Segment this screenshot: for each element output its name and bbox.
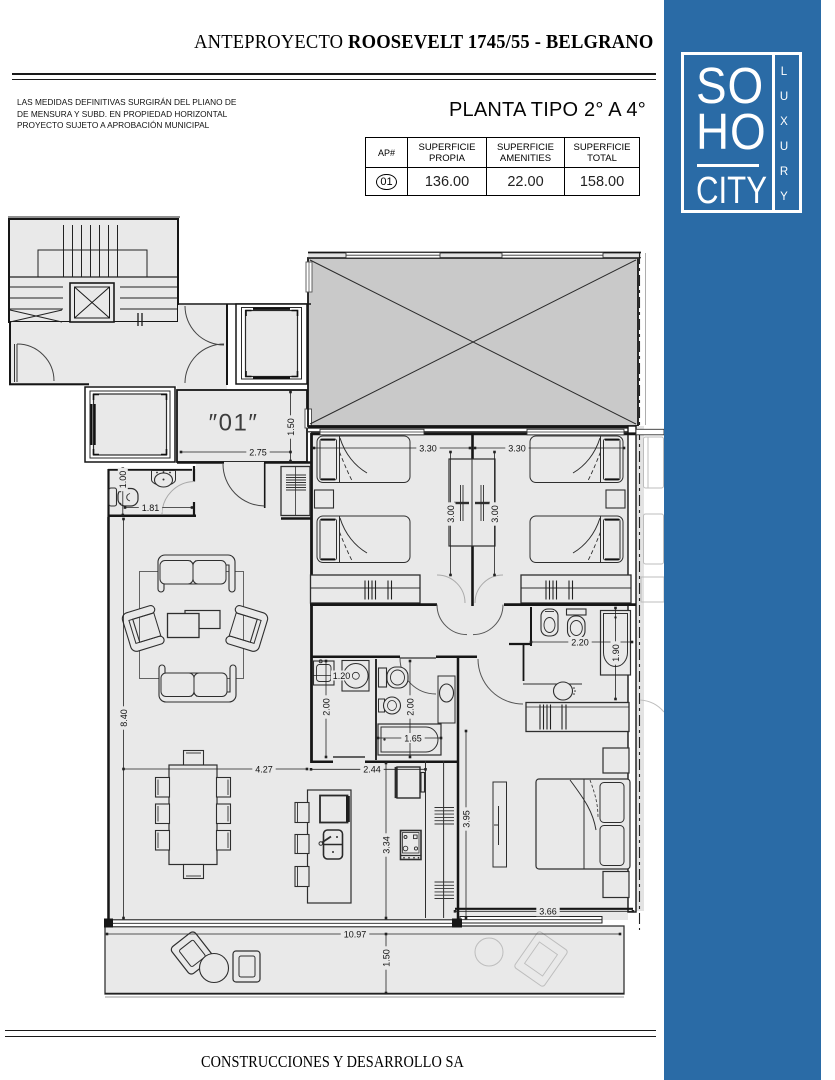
svg-text:2.75: 2.75 <box>249 447 267 457</box>
svg-text:3.66: 3.66 <box>539 907 557 917</box>
svg-text:1.65: 1.65 <box>404 733 422 743</box>
svg-text:1.90: 1.90 <box>611 644 621 662</box>
svg-text:10.97: 10.97 <box>344 929 367 939</box>
svg-text:3.00: 3.00 <box>490 505 500 523</box>
svg-text:1.00: 1.00 <box>118 471 128 489</box>
svg-text:1.20: 1.20 <box>333 671 351 681</box>
svg-text:3.30: 3.30 <box>419 443 437 453</box>
svg-text:3.30: 3.30 <box>508 443 526 453</box>
svg-text:1.50: 1.50 <box>381 949 391 967</box>
svg-text:2.00: 2.00 <box>321 698 331 716</box>
svg-text:″01″: ″01″ <box>209 410 259 437</box>
svg-text:1.81: 1.81 <box>142 503 160 513</box>
svg-text:4.27: 4.27 <box>255 764 273 774</box>
svg-text:3.95: 3.95 <box>461 810 471 828</box>
svg-text:1.50: 1.50 <box>286 418 296 436</box>
svg-text:3.34: 3.34 <box>381 836 391 854</box>
svg-text:3.00: 3.00 <box>446 505 456 523</box>
svg-text:2.00: 2.00 <box>405 698 415 716</box>
svg-text:2.20: 2.20 <box>571 637 589 647</box>
svg-text:8.40: 8.40 <box>119 709 129 727</box>
svg-text:2.44: 2.44 <box>363 765 381 775</box>
